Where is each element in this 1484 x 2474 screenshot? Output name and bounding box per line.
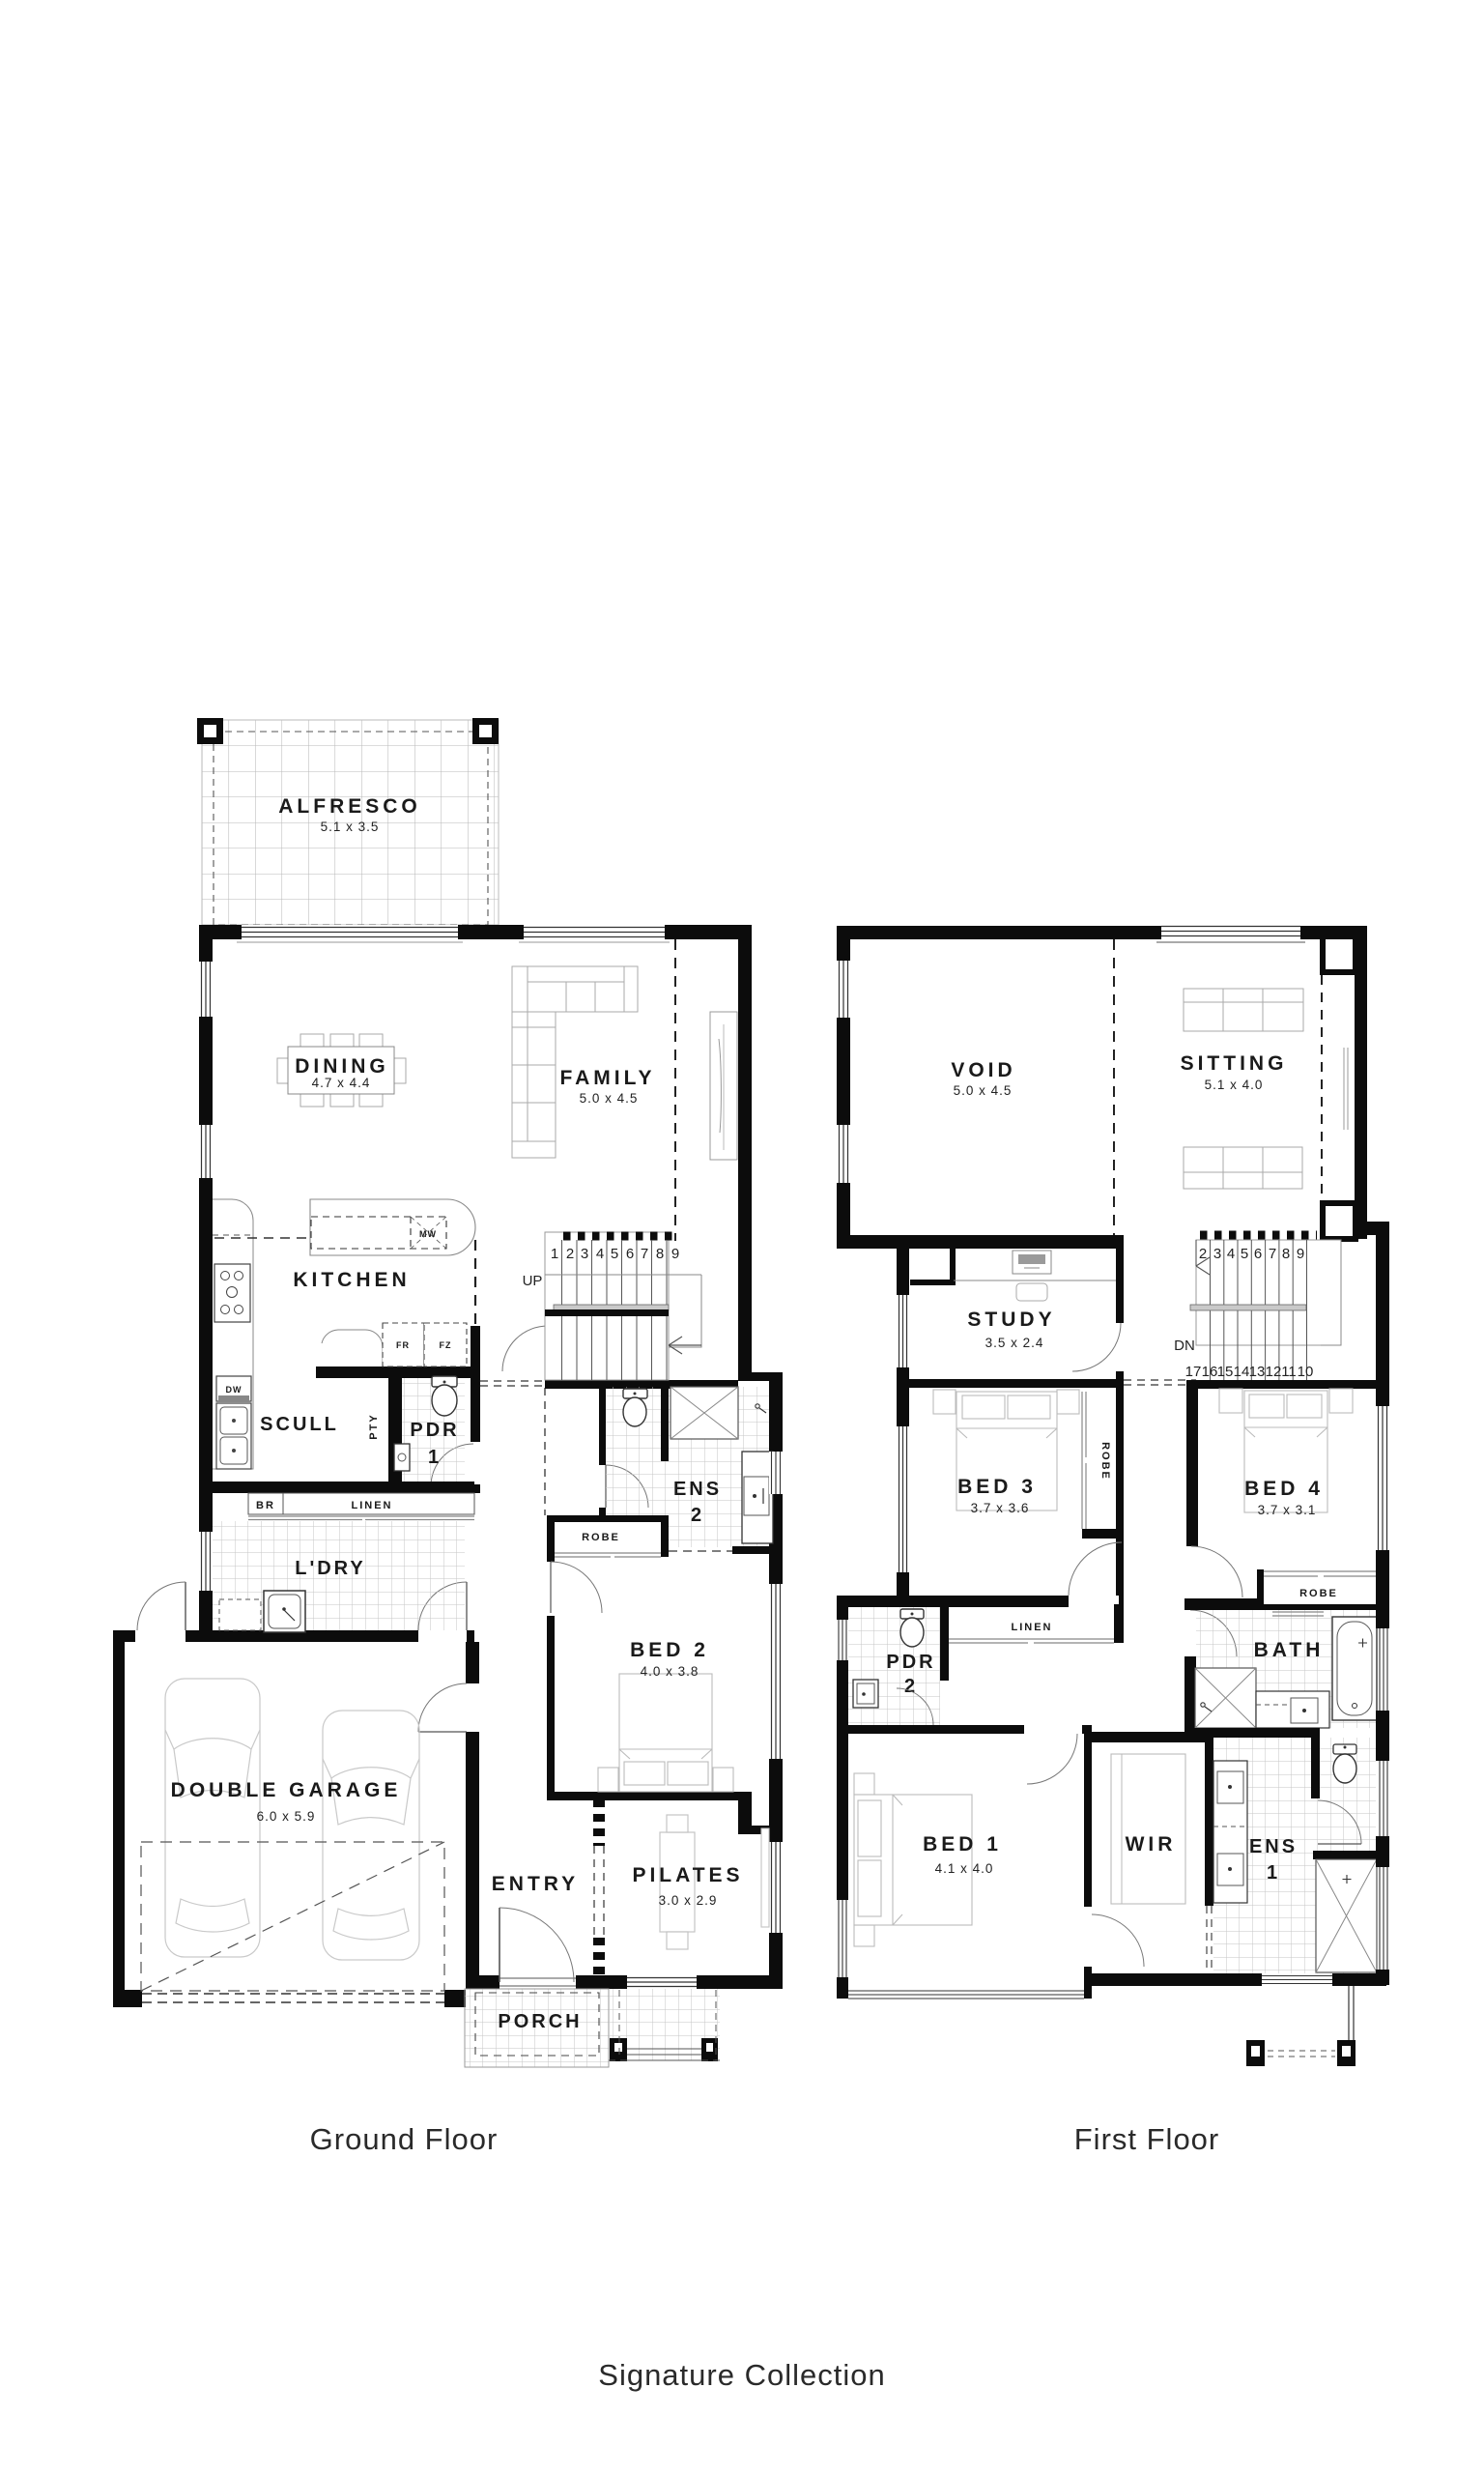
svg-text:PDR: PDR — [410, 1420, 459, 1441]
svg-text:2: 2 — [1199, 1246, 1207, 1262]
svg-text:4: 4 — [596, 1246, 604, 1262]
svg-text:2: 2 — [691, 1505, 704, 1526]
svg-text:6.0 x 5.9: 6.0 x 5.9 — [257, 1809, 316, 1824]
svg-text:ENS: ENS — [1249, 1836, 1298, 1857]
svg-text:LINEN: LINEN — [352, 1500, 393, 1511]
svg-text:4.7 x 4.4: 4.7 x 4.4 — [312, 1076, 371, 1090]
svg-text:3.7 x 3.1: 3.7 x 3.1 — [1258, 1503, 1317, 1517]
svg-text:BED 3: BED 3 — [957, 1476, 1037, 1498]
svg-text:9: 9 — [671, 1246, 679, 1262]
svg-text:13: 13 — [1249, 1364, 1266, 1380]
svg-text:ROBE: ROBE — [582, 1532, 620, 1543]
svg-text:PILATES: PILATES — [632, 1864, 743, 1886]
svg-text:9: 9 — [1297, 1246, 1304, 1262]
svg-text:UP: UP — [523, 1273, 543, 1289]
svg-text:DINING: DINING — [295, 1055, 389, 1078]
svg-text:14: 14 — [1234, 1364, 1250, 1380]
svg-text:16: 16 — [1202, 1364, 1218, 1380]
svg-text:17: 17 — [1185, 1364, 1202, 1380]
svg-text:FAMILY: FAMILY — [559, 1067, 655, 1089]
svg-text:LINEN: LINEN — [1012, 1622, 1053, 1633]
svg-text:15: 15 — [1217, 1364, 1234, 1380]
svg-text:STUDY: STUDY — [967, 1309, 1055, 1331]
svg-text:4: 4 — [1227, 1246, 1235, 1262]
svg-text:3: 3 — [581, 1246, 588, 1262]
svg-text:BR: BR — [256, 1500, 275, 1511]
svg-text:BED 4: BED 4 — [1244, 1478, 1324, 1500]
svg-text:L'DRY: L'DRY — [295, 1558, 365, 1579]
svg-text:VOID: VOID — [951, 1059, 1015, 1081]
svg-text:ROBE: ROBE — [1299, 1588, 1338, 1599]
svg-text:12: 12 — [1266, 1364, 1282, 1380]
svg-text:PORCH: PORCH — [498, 2011, 582, 2032]
svg-text:3.7 x 3.6: 3.7 x 3.6 — [971, 1501, 1030, 1515]
svg-text:DN: DN — [1174, 1338, 1195, 1354]
svg-text:DOUBLE GARAGE: DOUBLE GARAGE — [171, 1779, 402, 1801]
svg-text:BED 1: BED 1 — [923, 1833, 1002, 1855]
svg-text:PDR: PDR — [886, 1652, 935, 1673]
svg-text:ENS: ENS — [673, 1479, 722, 1500]
svg-text:BATH: BATH — [1254, 1639, 1325, 1661]
svg-text:1: 1 — [428, 1447, 442, 1468]
svg-text:First Floor: First Floor — [1074, 2122, 1220, 2156]
svg-text:SITTING: SITTING — [1181, 1052, 1288, 1075]
svg-text:Signature Collection: Signature Collection — [598, 2358, 885, 2392]
svg-text:3.5 x 2.4: 3.5 x 2.4 — [985, 1336, 1044, 1350]
svg-text:1: 1 — [551, 1246, 558, 1262]
svg-text:1: 1 — [1267, 1862, 1280, 1884]
svg-text:FZ: FZ — [440, 1340, 452, 1350]
svg-text:8: 8 — [1282, 1246, 1290, 1262]
svg-text:5.0 x 4.5: 5.0 x 4.5 — [580, 1091, 639, 1106]
svg-text:6: 6 — [626, 1246, 634, 1262]
svg-text:11: 11 — [1281, 1364, 1297, 1380]
svg-text:2: 2 — [566, 1246, 574, 1262]
svg-text:5.0 x 4.5: 5.0 x 4.5 — [954, 1083, 1013, 1098]
svg-text:3: 3 — [1213, 1246, 1221, 1262]
svg-text:ENTRY: ENTRY — [492, 1873, 579, 1895]
svg-text:WIR: WIR — [1126, 1833, 1177, 1855]
svg-text:ROBE: ROBE — [1099, 1442, 1111, 1481]
svg-text:5.1 x 3.5: 5.1 x 3.5 — [321, 820, 380, 834]
svg-text:DW: DW — [226, 1385, 243, 1395]
svg-text:PTY: PTY — [368, 1413, 380, 1439]
svg-text:SCULL: SCULL — [260, 1414, 339, 1435]
svg-text:Ground Floor: Ground Floor — [310, 2122, 499, 2156]
svg-text:8: 8 — [656, 1246, 664, 1262]
svg-text:5: 5 — [1241, 1246, 1248, 1262]
svg-text:3.0 x 2.9: 3.0 x 2.9 — [659, 1893, 718, 1908]
svg-text:MW: MW — [419, 1229, 437, 1239]
svg-text:KITCHEN: KITCHEN — [293, 1269, 410, 1291]
svg-text:5.1 x 4.0: 5.1 x 4.0 — [1205, 1078, 1264, 1092]
svg-text:ALFRESCO: ALFRESCO — [278, 795, 421, 818]
svg-text:4.1 x 4.0: 4.1 x 4.0 — [935, 1861, 994, 1876]
svg-text:FR: FR — [396, 1340, 410, 1350]
svg-text:10: 10 — [1298, 1364, 1314, 1380]
svg-text:7: 7 — [1269, 1246, 1276, 1262]
svg-text:7: 7 — [641, 1246, 648, 1262]
svg-text:6: 6 — [1254, 1246, 1262, 1262]
svg-text:5: 5 — [611, 1246, 618, 1262]
svg-text:BED 2: BED 2 — [630, 1639, 709, 1661]
svg-text:4.0 x 3.8: 4.0 x 3.8 — [641, 1664, 699, 1679]
